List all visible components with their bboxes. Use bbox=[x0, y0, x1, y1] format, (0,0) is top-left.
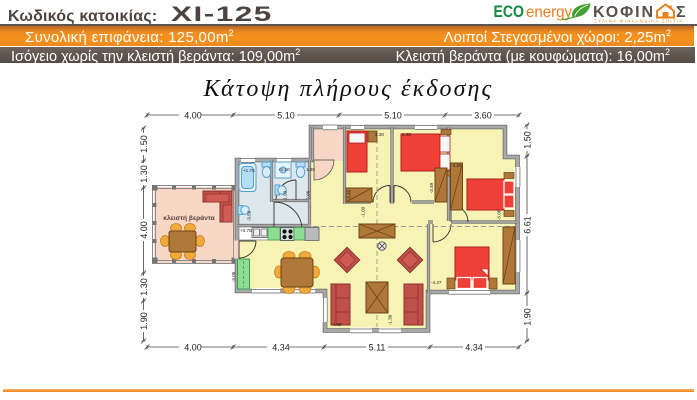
svg-text:1.30: 1.30 bbox=[139, 278, 149, 296]
svg-text:-3.06: -3.06 bbox=[231, 271, 236, 282]
svg-text:+1.75: +1.75 bbox=[243, 168, 255, 173]
svg-text:4.34: 4.34 bbox=[272, 342, 290, 352]
svg-text:-4.69: -4.69 bbox=[331, 322, 342, 327]
svg-text:-3.58: -3.58 bbox=[247, 210, 252, 221]
svg-text:1.30: 1.30 bbox=[139, 165, 149, 183]
svg-text:+0.78: +0.78 bbox=[240, 228, 252, 233]
svg-text:1.90: 1.90 bbox=[139, 312, 149, 330]
svg-text:5.10: 5.10 bbox=[384, 110, 402, 120]
svg-text:4.00: 4.00 bbox=[139, 221, 149, 239]
svg-text:-3.49: -3.49 bbox=[347, 189, 352, 200]
svg-text:1.90: 1.90 bbox=[522, 308, 532, 326]
svg-text:-3.49: -3.49 bbox=[429, 182, 434, 193]
svg-text:1.65: 1.65 bbox=[306, 167, 315, 172]
svg-text:4.00: 4.00 bbox=[184, 342, 202, 352]
svg-text:-1.99: -1.99 bbox=[283, 190, 288, 201]
svg-text:1.50: 1.50 bbox=[139, 135, 149, 153]
svg-text:2.30: 2.30 bbox=[375, 132, 384, 137]
svg-text:2.35: 2.35 bbox=[402, 132, 411, 137]
svg-text:-4.27: -4.27 bbox=[431, 280, 442, 285]
svg-text:-1.36: -1.36 bbox=[388, 314, 393, 325]
svg-text:-3.06: -3.06 bbox=[497, 209, 502, 220]
svg-text:5.11: 5.11 bbox=[369, 342, 386, 352]
svg-text:+1.50: +1.50 bbox=[278, 167, 290, 172]
svg-text:1.50: 1.50 bbox=[522, 131, 532, 149]
svg-text:-3.20: -3.20 bbox=[451, 163, 462, 168]
svg-text:4.00: 4.00 bbox=[184, 110, 202, 120]
svg-text:-2.06: -2.06 bbox=[306, 190, 311, 201]
svg-text:4.34: 4.34 bbox=[465, 342, 483, 352]
svg-text:5.10: 5.10 bbox=[277, 110, 295, 120]
svg-text:κλειστή βεράντα: κλειστή βεράντα bbox=[163, 214, 214, 222]
svg-text:-1.00: -1.00 bbox=[361, 206, 366, 217]
svg-text:3.60: 3.60 bbox=[474, 110, 492, 120]
svg-text:6.61: 6.61 bbox=[522, 216, 532, 234]
